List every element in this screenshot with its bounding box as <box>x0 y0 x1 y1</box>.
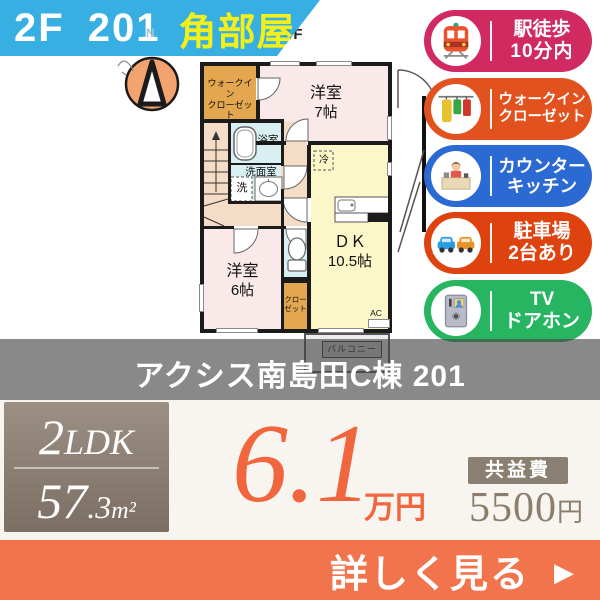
spec-divider <box>14 467 159 469</box>
feature-badge-counter-kitchen: カウンターキッチン <box>424 145 592 207</box>
rent-unit: 万円 <box>364 482 426 527</box>
fee-label-badge: 共益費 <box>468 457 568 484</box>
doorphone-icon <box>435 290 477 332</box>
feature-badge-walkin-closet: ウォークインクローゼット <box>424 78 592 140</box>
details-button[interactable]: 詳しく見る ▶ <box>0 540 600 600</box>
unit-banner: 2F 201 角部屋 <box>0 0 340 56</box>
layout-type: 2LDK <box>4 408 169 466</box>
feature-badge-parking: 駐車場2台あり <box>424 212 592 274</box>
badge-text: 10分内 <box>496 41 588 63</box>
window <box>316 61 352 66</box>
badge-circle <box>431 286 481 336</box>
badge-text: ドアホン <box>496 311 588 333</box>
rent-value: 6.1 <box>232 408 372 520</box>
badge-circle <box>431 151 481 201</box>
wall <box>256 62 260 78</box>
room6-label: 洋室6帖 <box>204 262 281 300</box>
wall <box>204 226 234 229</box>
wall <box>307 145 311 198</box>
compass-icon <box>126 58 178 110</box>
bath-label: 浴室 <box>252 134 284 147</box>
parking-icon <box>435 222 477 264</box>
badge-text: TV <box>496 289 588 311</box>
north-label: N <box>146 26 155 40</box>
badge-separator <box>490 291 492 331</box>
wall <box>230 163 282 165</box>
corner-room-tag: 角部屋 <box>179 1 296 56</box>
counter-kitchen-icon <box>435 155 477 197</box>
feature-badge-station: 駅徒歩10分内 <box>424 10 592 72</box>
window <box>216 328 258 333</box>
window <box>270 61 300 66</box>
unit-number: 2F 201 <box>14 6 161 51</box>
walkin-closet-label: ウォークインクローゼット <box>204 78 256 121</box>
wall <box>281 189 284 229</box>
listing-card: バルコニー <box>0 0 600 600</box>
washer-label: 洗 <box>235 182 249 195</box>
wall <box>228 201 284 204</box>
property-title-bar: アクシス南島田C棟 201 <box>0 339 600 400</box>
spec-box: 2LDK 57.3m² <box>4 402 169 532</box>
badge-circle <box>431 16 481 66</box>
badge-text: ウォークイン <box>496 92 588 109</box>
fee-value: 5500円 <box>456 484 596 532</box>
low-window <box>368 319 390 328</box>
window <box>387 162 392 176</box>
balcony-door <box>318 328 364 333</box>
doodle-mark <box>118 61 133 75</box>
badge-text: キッチン <box>496 176 588 196</box>
details-button-label: 詳しく見る <box>330 543 530 598</box>
closet-label: クローゼット <box>284 295 307 313</box>
badge-circle <box>431 218 481 268</box>
badge-text: 駐車場 <box>496 221 588 243</box>
dk-label: ＤＫ10.5帖 <box>314 233 386 271</box>
fridge-label: 冷 <box>317 155 331 167</box>
wall <box>281 277 310 283</box>
arrow-right-icon: ▶ <box>554 553 574 588</box>
floor-area: 57.3m² <box>4 472 169 530</box>
washroom-label: 洗面室 <box>238 166 284 179</box>
closet-icon <box>435 88 477 130</box>
room7-label: 洋室7帖 <box>295 84 357 122</box>
badge-text: カウンター <box>496 156 588 176</box>
badge-separator <box>490 89 492 129</box>
badge-separator <box>490 21 492 61</box>
badge-text: 駅徒歩 <box>496 19 588 41</box>
ac-label: AC <box>366 308 386 318</box>
wall <box>308 141 392 145</box>
window <box>387 116 392 140</box>
train-icon <box>435 20 477 62</box>
badge-text: クローゼット <box>496 109 588 126</box>
property-title: アクシス南島田C棟 201 <box>134 345 466 395</box>
feature-badge-tv-doorphone: TVドアホン <box>424 280 592 342</box>
badge-separator <box>490 156 492 196</box>
badge-separator <box>490 223 492 263</box>
badge-text: 2台あり <box>496 243 588 265</box>
badge-circle <box>431 84 481 134</box>
